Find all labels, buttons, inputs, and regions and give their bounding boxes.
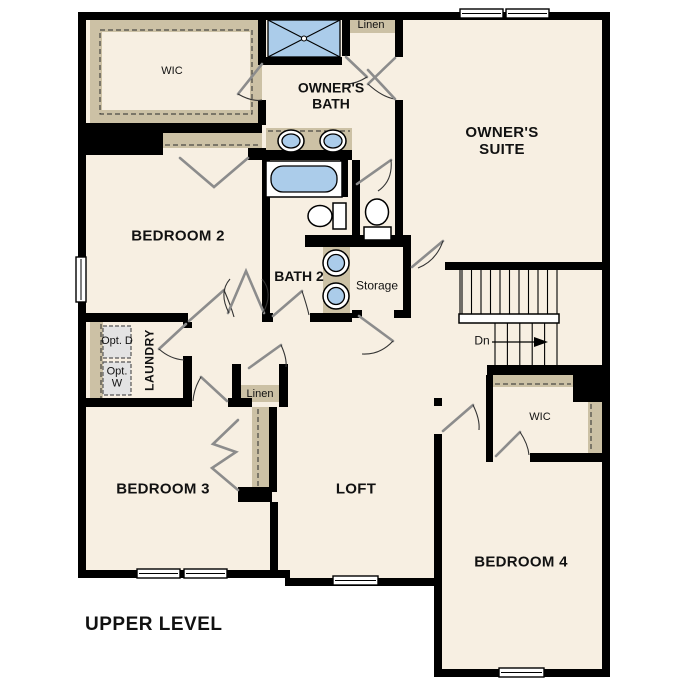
- window-bed3-1: [137, 569, 180, 578]
- wall-bed2-bottom: [82, 313, 188, 322]
- bed4-wic-top-shelf: [493, 373, 573, 387]
- stair-landing: [459, 314, 559, 323]
- wall-hall-right: [403, 235, 411, 318]
- label-owners-bath: OWNER'S BATH: [289, 80, 373, 111]
- wall-chase: [82, 133, 163, 155]
- wall-bed3-loft: [270, 502, 278, 578]
- label-bed4-wic: WIC: [529, 411, 550, 423]
- floor-plan: WIC Linen OWNER'S BATH OWNER'S SUITE BED…: [0, 0, 687, 687]
- wall-linen-hall-left: [232, 364, 241, 407]
- bathtub: [266, 161, 342, 197]
- label-bedroom3: BEDROOM 3: [116, 482, 210, 499]
- window-suite-1: [460, 9, 503, 18]
- label-bath2: BATH 2: [274, 269, 324, 285]
- wall-suite-left-lower: [395, 100, 403, 240]
- wall-wic4-left: [486, 375, 493, 462]
- bed4-wic-right-shelf: [588, 402, 602, 453]
- label-loft: LOFT: [336, 482, 376, 499]
- label-bedroom4: BEDROOM 4: [474, 555, 568, 572]
- wall-linen-left: [342, 12, 350, 56]
- wall-wic4-corner: [573, 375, 602, 402]
- plan-title: UPPER LEVEL: [85, 614, 222, 636]
- wall-outer-right: [602, 12, 610, 677]
- wall-wc-left: [352, 160, 360, 243]
- label-owners-suite: OWNER'S SUITE: [454, 125, 550, 159]
- wall-stair-bottom: [487, 365, 602, 375]
- wall-laundry-right: [183, 356, 192, 405]
- label-opt-dryer: Opt. D: [101, 335, 133, 347]
- window-bed3-2: [184, 569, 227, 578]
- wall-bed2-door-stub: [263, 313, 273, 322]
- wall-bed4-door-stub: [434, 398, 442, 406]
- wall-wic4-bottom: [530, 453, 602, 462]
- owner-toilet: [364, 199, 391, 240]
- wall-laundry-bottom: [82, 398, 192, 407]
- wall-shower-bottom: [258, 57, 342, 65]
- window-bed2-left: [76, 257, 86, 302]
- bedroom3-closet-shelf: [252, 407, 269, 498]
- label-stairs-dn: Dn: [474, 334, 489, 347]
- wall-bed3-closet-bottom: [238, 487, 272, 502]
- wall-bath2-bottom: [310, 313, 352, 322]
- shower: [268, 20, 340, 57]
- wall-storage-stub-r: [394, 310, 403, 318]
- window-loft: [333, 576, 378, 585]
- wall-stair-top: [445, 262, 602, 270]
- wall-below-wic: [82, 123, 262, 133]
- label-owner-linen: Linen: [358, 19, 385, 31]
- wall-bed3-closet: [269, 407, 277, 492]
- label-laundry: LAUNDRY: [143, 329, 156, 391]
- label-opt-washer: Opt. W: [101, 366, 133, 391]
- bedroom2-closet-shelf: [163, 133, 262, 148]
- wall-suite-left-upper: [395, 12, 403, 57]
- wall-bed4-left: [434, 434, 442, 677]
- label-owner-wic: WIC: [161, 65, 182, 77]
- label-hall-linen: Linen: [247, 388, 274, 400]
- window-suite-2: [506, 9, 549, 18]
- wall-wic-bath-upper: [258, 12, 266, 64]
- window-bed4: [499, 668, 544, 677]
- bath2-toilet: [308, 203, 346, 229]
- label-bedroom2: BEDROOM 2: [131, 229, 225, 246]
- label-storage: Storage: [356, 279, 398, 292]
- wall-wic-bath-lower: [258, 100, 266, 125]
- wall-linen-hall-right: [279, 364, 288, 407]
